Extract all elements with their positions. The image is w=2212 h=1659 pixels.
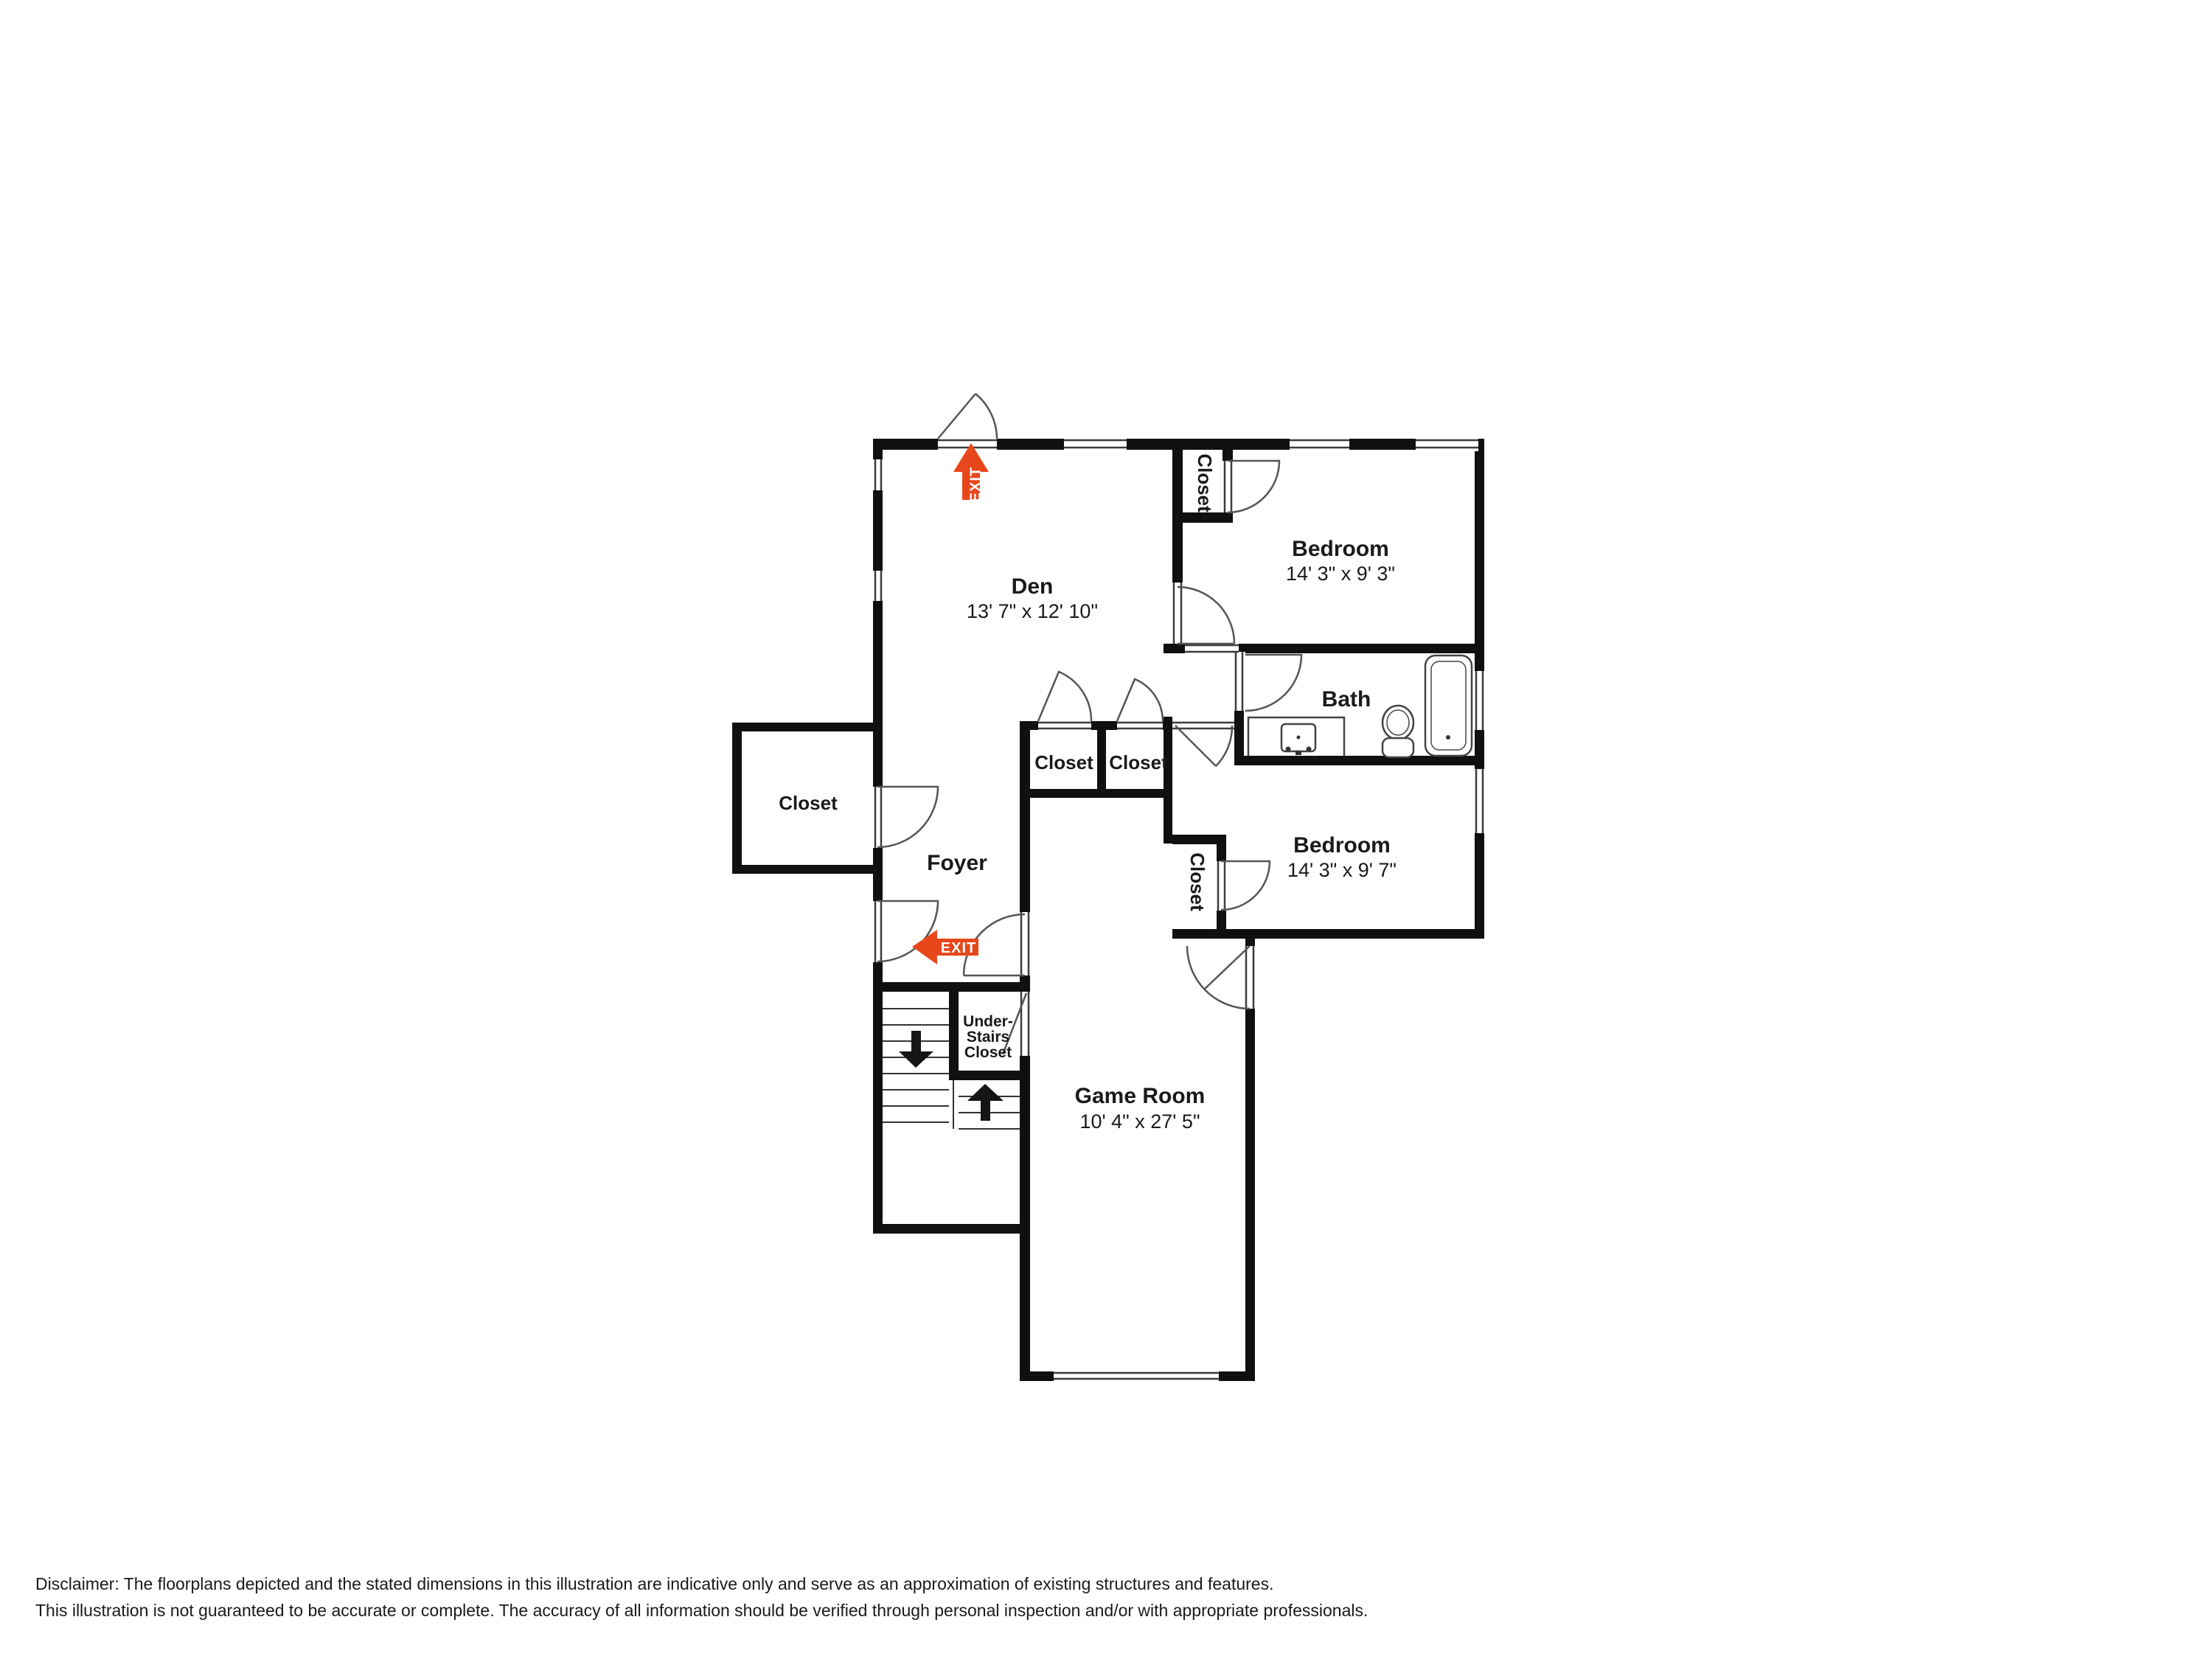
disclaimer-line-1: Disclaimer: The floorplans depicted and … (35, 1574, 1273, 1593)
room-label-foyer: Foyer (927, 851, 987, 875)
exit-arrow-left: EXIT (912, 930, 978, 964)
closet-label-bedroom-bottom: Closet (1186, 852, 1208, 911)
exit-arrow-left-label: EXIT (941, 940, 976, 956)
room-label-bedroom-bottom: Bedroom (1293, 833, 1391, 858)
disclaimer-line-2: This illustration is not guaranteed to b… (35, 1601, 1368, 1620)
room-dims-game-room: 10' 4" x 27' 5" (1079, 1110, 1200, 1133)
bathtub-icon (1425, 655, 1472, 756)
stairs-up-arrow-icon (967, 1084, 1004, 1121)
under-stairs-closet-label-line1: Under- (963, 1013, 1013, 1030)
stairs-down-arrow-icon (899, 1031, 933, 1068)
under-stairs-closet-label-line2: Stairs (967, 1029, 1009, 1046)
floorplan-canvas: EXIT EXIT Den 13' 7" x 12' 10" Bedroom 1… (0, 0, 2212, 1659)
exit-arrow-up-label: EXIT (967, 467, 984, 502)
room-label-game-room: Game Room (1075, 1084, 1206, 1108)
closet-label-hall-left: Closet (1034, 751, 1093, 773)
under-stairs-closet-label-line3: Closet (964, 1044, 1012, 1061)
exit-arrow-up: EXIT (953, 443, 989, 502)
room-label-den: Den (1012, 574, 1054, 599)
disclaimer: Disclaimer: The floorplans depicted and … (35, 1574, 1368, 1620)
closet-label-hall-right: Closet (1109, 751, 1168, 773)
room-label-bedroom-top: Bedroom (1292, 537, 1389, 561)
exit-arrow-left-head (912, 930, 937, 964)
sink-vanity-icon (1248, 717, 1344, 756)
closet-label-bedroom-top: Closet (1194, 453, 1216, 512)
room-dims-bedroom-top: 14' 3" x 9' 3" (1286, 563, 1395, 585)
closet-label-entry: Closet (779, 792, 838, 814)
room-label-bath: Bath (1322, 687, 1371, 712)
room-dims-bedroom-bottom: 14' 3" x 9' 7" (1287, 859, 1397, 881)
room-dims-den: 13' 7" x 12' 10" (967, 600, 1098, 622)
toilet-icon (1382, 706, 1413, 757)
